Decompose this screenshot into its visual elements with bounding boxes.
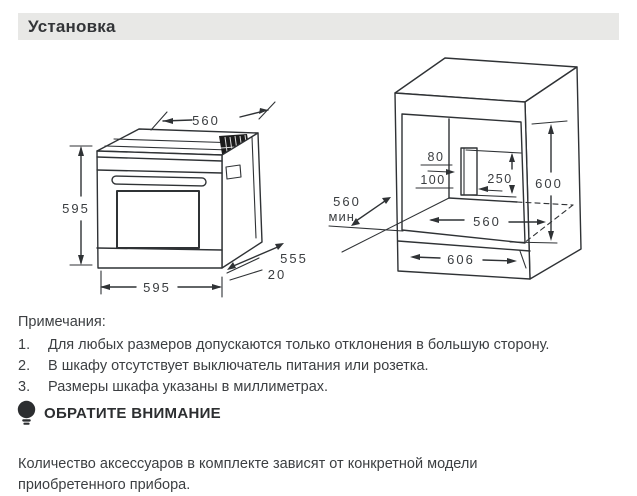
cabinet-dim-cutout-width: 80 <box>428 150 445 164</box>
oven-dim-height: 595 <box>62 201 90 216</box>
attention-heading: ОБРАТИТЕ ВНИМАНИЕ <box>44 405 221 422</box>
list-item-number: 1. <box>18 335 48 356</box>
cabinet-dim-outer-width: 606 <box>447 252 475 267</box>
oven-dim-ledge: 20 <box>268 267 286 282</box>
lightbulb-icon <box>16 400 37 426</box>
attention-body: Количество аксессуаров в комплекте завис… <box>18 454 584 496</box>
attention-section: ОБРАТИТЕ ВНИМАНИЕ <box>16 400 221 426</box>
cabinet-outlet-cutout <box>461 148 477 195</box>
notes-heading: Примечания: <box>18 312 622 333</box>
list-item: 1. Для любых размеров допускаются только… <box>18 335 622 356</box>
notes-section: Примечания: 1. Для любых размеров допуск… <box>18 312 622 398</box>
cabinet-dim-niche-height: 600 <box>535 176 563 191</box>
oven-dim-depth: 555 <box>280 251 308 266</box>
oven-drawing <box>97 129 262 273</box>
oven-dim-bottom-width: 595 <box>143 280 171 295</box>
cabinet-dim-min-depth: 560 <box>333 194 361 209</box>
cabinet-drawing <box>395 58 581 279</box>
cabinet-dim-min-depth-unit: мин. <box>329 209 360 224</box>
oven-dim-top-width: 560 <box>192 113 220 128</box>
list-item: 2. В шкафу отсутствует выключатель питан… <box>18 356 622 377</box>
cabinet-dim-cutout-height: 250 <box>487 172 512 186</box>
list-item-text: Для любых размеров допускаются только от… <box>48 335 549 356</box>
list-item-number: 3. <box>18 377 48 398</box>
list-item-text: Размеры шкафа указаны в миллиметрах. <box>48 377 328 398</box>
installation-diagrams: 560 595 595 555 20 <box>0 0 637 312</box>
list-item: 3. Размеры шкафа указаны в миллиметрах. <box>18 377 622 398</box>
list-item-text: В шкафу отсутствует выключатель питания … <box>48 356 429 377</box>
list-item-number: 2. <box>18 356 48 377</box>
cabinet-dim-niche-width: 560 <box>473 214 501 229</box>
cabinet-dim-cutout-offset: 100 <box>420 173 445 187</box>
